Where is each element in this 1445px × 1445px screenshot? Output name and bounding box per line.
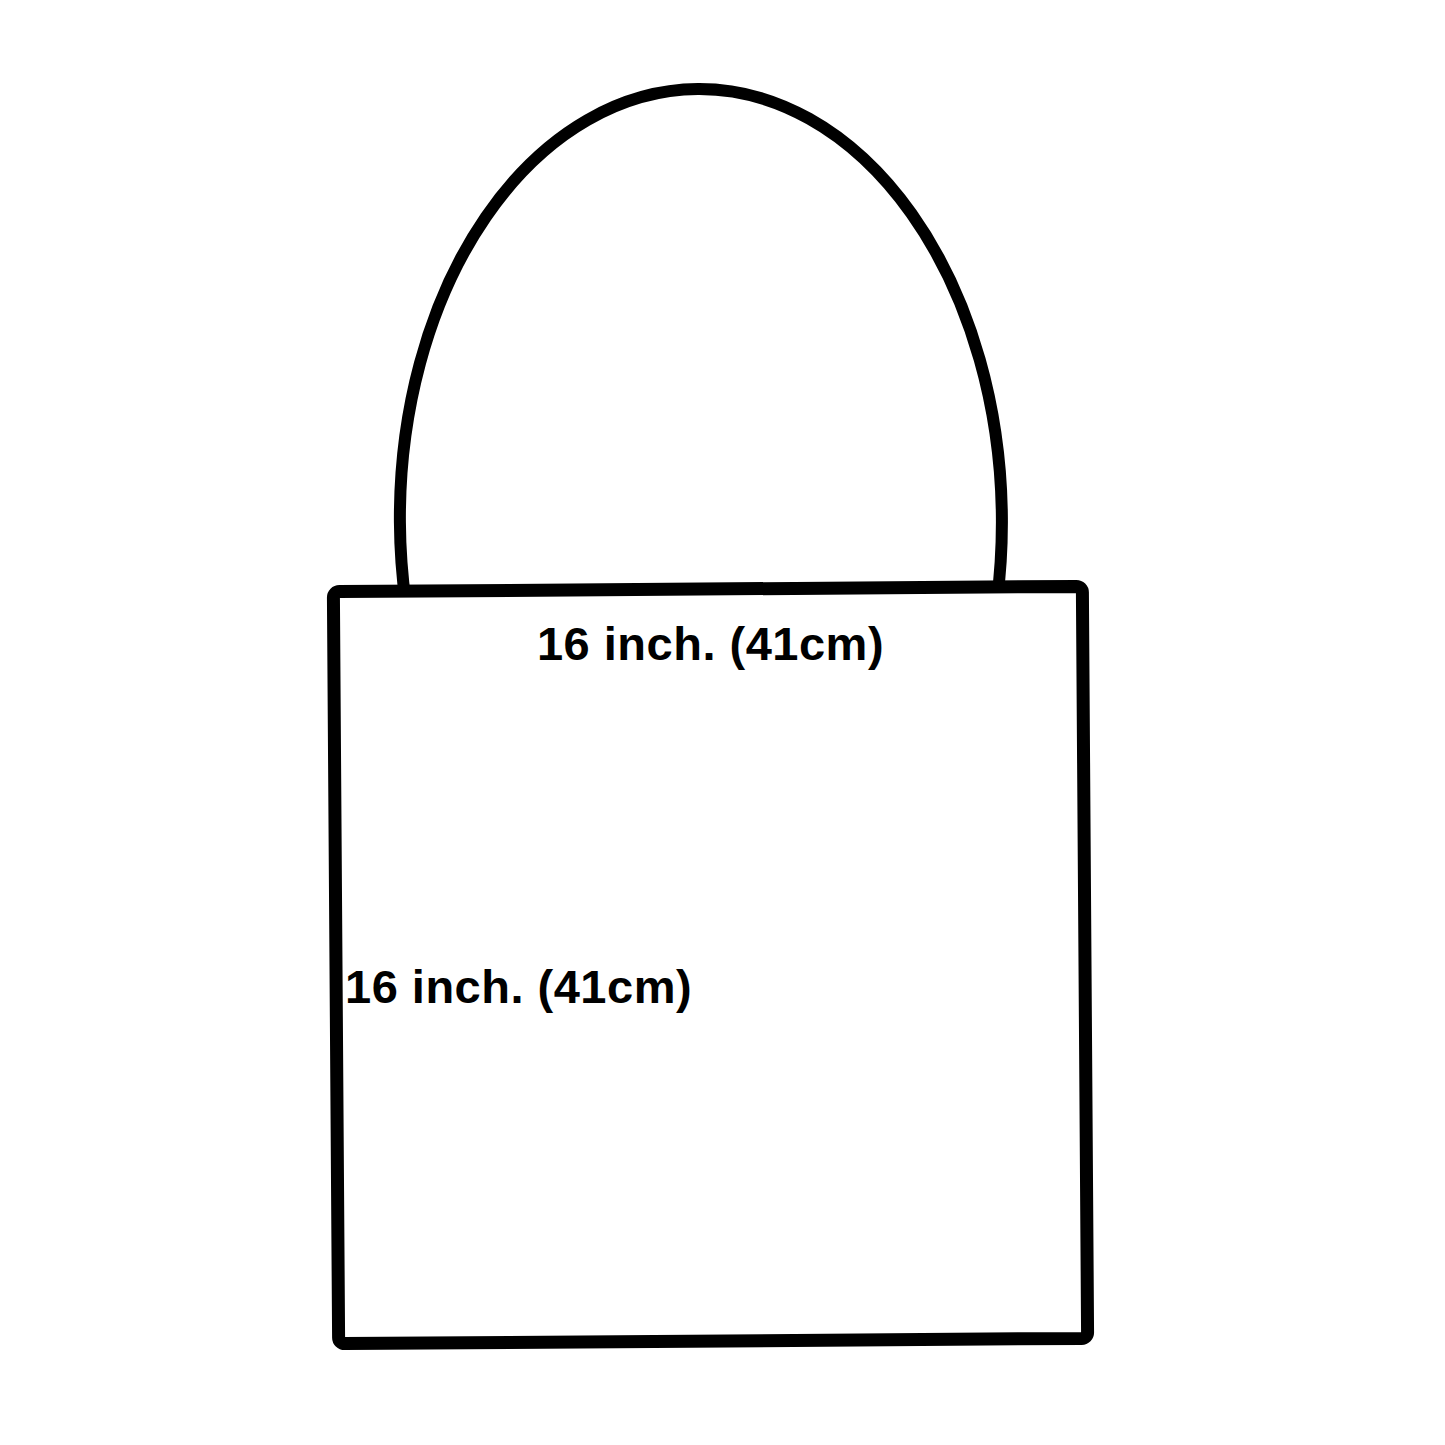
diagram-canvas: 16 inch. (41cm) 16 inch. (41cm)	[0, 0, 1445, 1445]
bag-outline-drawing	[0, 0, 1445, 1445]
width-dimension-label: 16 inch. (41cm)	[336, 620, 1085, 667]
height-dimension-label: 16 inch. (41cm)	[345, 963, 692, 1010]
